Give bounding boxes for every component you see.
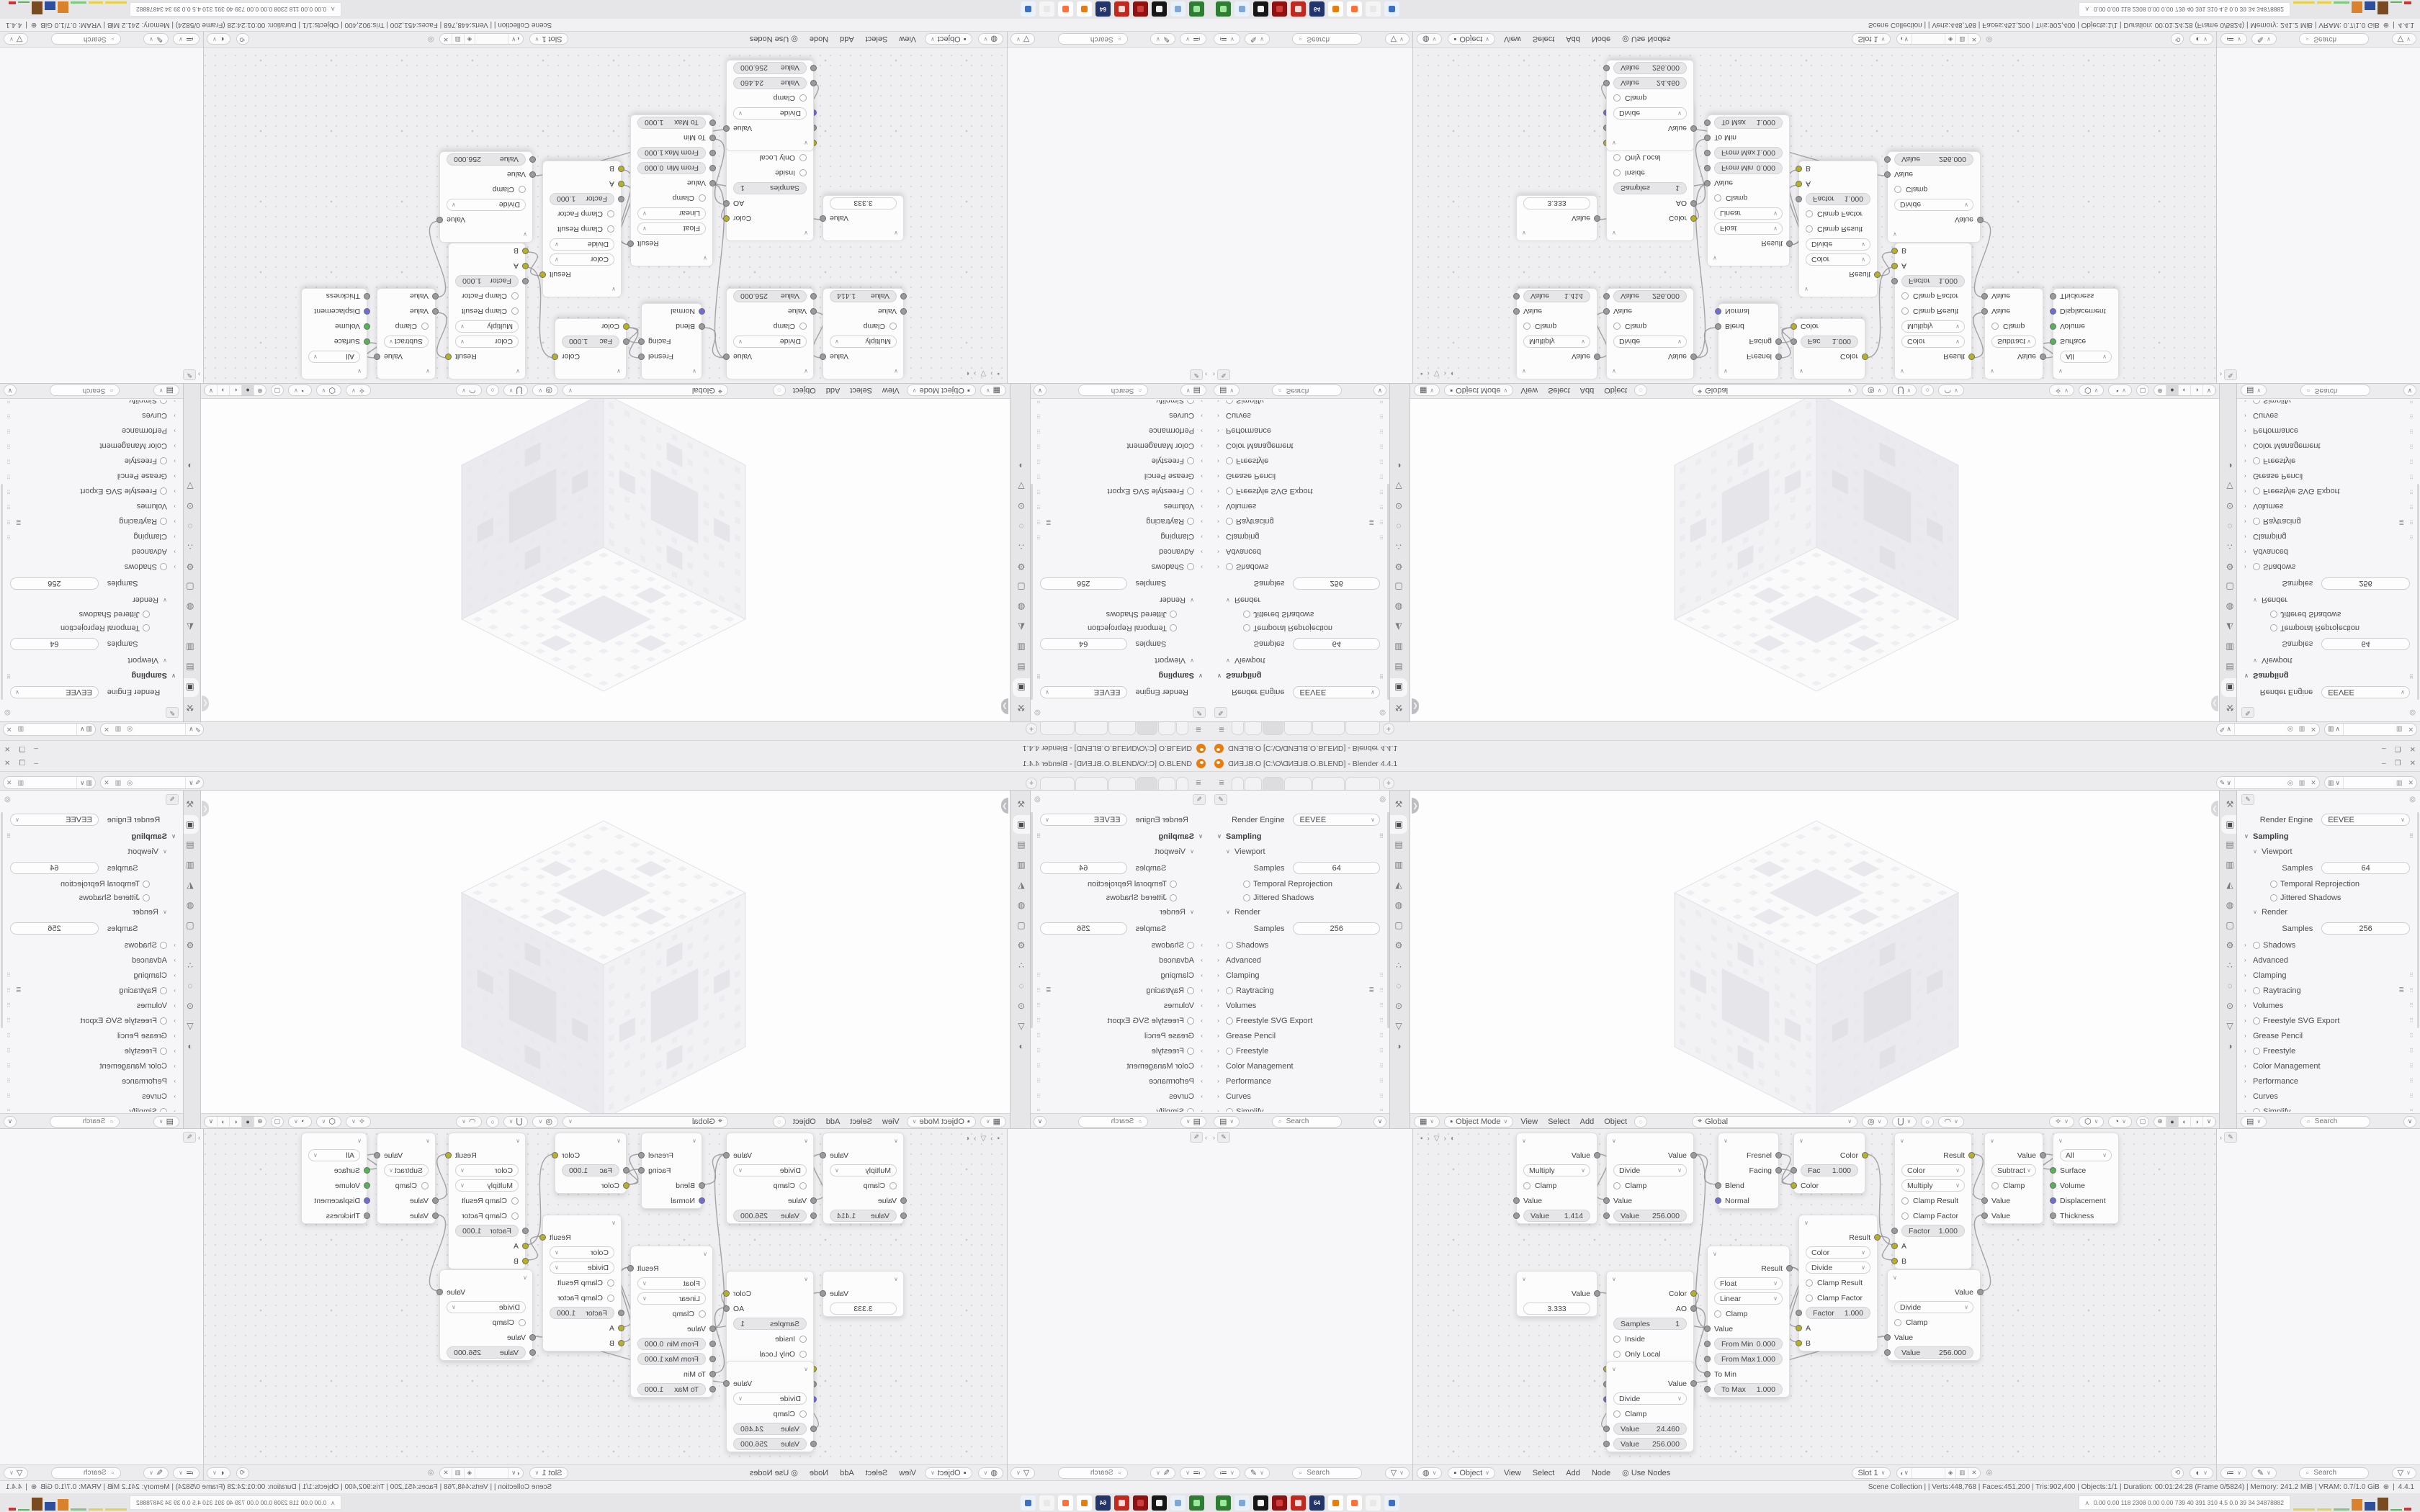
- socket-value[interactable]: [1884, 156, 1891, 163]
- material-slot-dropdown[interactable]: Slot 1∨: [529, 1467, 568, 1479]
- node-row-clamp-factor[interactable]: Clamp Factor: [1799, 207, 1877, 222]
- node-row-clamp[interactable]: Clamp: [1708, 191, 1789, 206]
- checkbox[interactable]: [1226, 518, 1233, 526]
- socket-color[interactable]: [723, 215, 730, 222]
- properties-tab-11-icon[interactable]: ▽: [2221, 477, 2238, 495]
- node-collapse-chevron[interactable]: ∨: [449, 1133, 525, 1148]
- node-row-divide[interactable]: Divide∨: [1607, 334, 1693, 349]
- prop-field-samples[interactable]: 256: [1040, 577, 1127, 590]
- node-dropdown[interactable]: Color∨: [455, 1164, 519, 1176]
- node-row-from-min[interactable]: From Min0.000: [631, 161, 712, 176]
- node-dropdown[interactable]: Divide∨: [447, 199, 526, 211]
- properties-tab-3-icon[interactable]: ▥: [2221, 855, 2238, 874]
- scene-selector[interactable]: ✎∨ ◎ ▥ ✕: [2216, 723, 2320, 736]
- menu-view[interactable]: View: [1501, 35, 1524, 44]
- prop-field-render-engine[interactable]: EEVEE∨: [10, 686, 99, 698]
- menu-add[interactable]: Add: [1577, 387, 1597, 395]
- scrollbar[interactable]: [1387, 484, 1389, 700]
- shading-mode-buttons[interactable]: ⊕●◐◑∨: [2154, 385, 2216, 397]
- checkbox[interactable]: [519, 1319, 526, 1326]
- material-selector[interactable]: ◐∨ ◈ ▥ ✕: [439, 1467, 523, 1479]
- node-value-field[interactable]: To Max1.000: [1714, 1383, 1783, 1395]
- node-value-field[interactable]: Samples1: [733, 1318, 807, 1330]
- ghost-toggle[interactable]: ▢: [271, 1116, 284, 1128]
- node-row-clamp[interactable]: Clamp: [631, 1306, 712, 1321]
- socket-factor[interactable]: [618, 1310, 624, 1316]
- node-value-field[interactable]: 3.333: [1523, 197, 1590, 210]
- properties-tab-5-icon[interactable]: ◍: [1013, 598, 1030, 616]
- properties-tab-7-icon[interactable]: ⚙: [181, 936, 199, 955]
- node-canvas[interactable]: ▪›▽›◐ ∨ValueMultiply∨ClampValueValue1.41…: [203, 1129, 1007, 1460]
- prop-panel-grease-pencil[interactable]: ›Grease Pencil⠿: [1210, 1028, 1387, 1043]
- node-map-range[interactable]: ∨ResultFloat∨Linear∨ClampValueFrom Min0.…: [1707, 1246, 1790, 1398]
- node-row-subtract[interactable]: Subtract∨: [377, 1163, 435, 1178]
- outliner-root-row[interactable]: › ✎: [1213, 369, 1230, 380]
- properties-tab-1-icon[interactable]: ▣: [1390, 678, 1407, 697]
- transform-orientation-dropdown[interactable]: ⌖Global∨: [1692, 1116, 1857, 1128]
- node-row-clamp-result[interactable]: Clamp Result: [1895, 304, 1971, 319]
- checkbox[interactable]: [1187, 518, 1194, 526]
- node-dropdown[interactable]: Divide∨: [1894, 1301, 1973, 1313]
- checkbox[interactable]: [889, 323, 897, 330]
- node-dropdown[interactable]: Color∨: [455, 336, 519, 348]
- properties-tab-9-icon[interactable]: ◌: [181, 976, 199, 995]
- workspace-tab-1[interactable]: [1232, 777, 1244, 791]
- checkbox[interactable]: [1187, 1048, 1194, 1055]
- node-value-field[interactable]: Factor1.000: [455, 275, 519, 287]
- checkbox[interactable]: [799, 1336, 807, 1343]
- socket-value[interactable]: [1603, 293, 1610, 300]
- taskbar-apps[interactable]: 64: [1021, 2, 1204, 17]
- filter-funnel-button[interactable]: ▽∨: [1385, 1467, 1410, 1479]
- prop-panel-performance[interactable]: ›Performance⠿: [3, 1074, 183, 1089]
- properties-tab-12-icon[interactable]: ◑: [181, 456, 199, 475]
- material-copy-icon[interactable]: ▥: [1955, 1468, 1968, 1478]
- minimize-button[interactable]: –: [34, 760, 38, 768]
- prop-panel-color-management[interactable]: ›Color Management⠿: [1033, 1058, 1210, 1074]
- checkbox[interactable]: [1901, 1212, 1909, 1220]
- checkbox[interactable]: [160, 400, 167, 405]
- workspace-tab-2[interactable]: [1245, 777, 1262, 791]
- node-value-field[interactable]: Value1.414: [830, 290, 897, 302]
- node-collapse-chevron[interactable]: ∨: [302, 1133, 367, 1148]
- node-math-divide-2[interactable]: ∨ValueDivide∨ClampValue24.460Value256.00…: [1606, 1361, 1694, 1452]
- shading-mode-buttons[interactable]: ⊕●◐◑∨: [204, 1116, 266, 1128]
- node-collapse-chevron[interactable]: ∨: [377, 364, 435, 379]
- node-row-clamp[interactable]: Clamp: [377, 1178, 435, 1193]
- editor-type-button[interactable]: ▤∨: [1214, 385, 1240, 397]
- socket-value[interactable]: [2040, 1152, 2046, 1158]
- node-row-multiply[interactable]: Multiply∨: [823, 334, 903, 349]
- node-value-field[interactable]: 3.333: [1523, 1302, 1590, 1315]
- snap-toggle[interactable]: ⟲: [2171, 34, 2184, 45]
- material-selector[interactable]: ◐∨ ◈ ▥ ✕: [1896, 1467, 1980, 1479]
- checkbox[interactable]: [1170, 625, 1177, 632]
- node-value-field[interactable]: Value256.000: [1894, 1346, 1973, 1359]
- material-copy-icon[interactable]: ▥: [452, 1468, 465, 1478]
- node-dropdown[interactable]: Subtract∨: [1991, 336, 2036, 348]
- socket-result[interactable]: [1968, 354, 1975, 360]
- add-workspace-button[interactable]: +: [1026, 723, 1037, 734]
- mode-selector[interactable]: ▪Object Mode∨: [907, 385, 976, 397]
- workspace-tab-3[interactable]: [1137, 721, 1157, 735]
- view-layer-name-field[interactable]: [2343, 724, 2393, 735]
- xray-dropdown[interactable]: ◔∨: [2108, 385, 2132, 397]
- proportional-edit-toggle[interactable]: ○: [486, 385, 499, 397]
- checkbox[interactable]: [511, 1197, 519, 1205]
- checkbox[interactable]: [1806, 211, 1813, 218]
- checkbox[interactable]: [1187, 1108, 1194, 1112]
- node-collapse-chevron[interactable]: ∨: [1718, 364, 1778, 379]
- node-row-samples[interactable]: Samples1: [1607, 181, 1693, 196]
- properties-tab-3-icon[interactable]: ▥: [1390, 855, 1407, 874]
- socket-value[interactable]: [1603, 1426, 1610, 1432]
- socket-factor[interactable]: [1891, 278, 1898, 284]
- menu-object[interactable]: Object: [1601, 387, 1630, 395]
- socket-value[interactable]: [432, 308, 439, 315]
- node-row-clamp[interactable]: Clamp: [1607, 1406, 1693, 1421]
- workspace-tab-1[interactable]: [1232, 721, 1244, 735]
- checkbox[interactable]: [1187, 458, 1194, 465]
- properties-tab-11-icon[interactable]: ▽: [1013, 1017, 1030, 1035]
- node-value-field[interactable]: From Min0.000: [1714, 162, 1783, 174]
- properties-tab-2-icon[interactable]: ▤: [2221, 658, 2238, 677]
- checkbox[interactable]: [889, 1182, 897, 1189]
- checkbox[interactable]: [1991, 323, 1999, 330]
- node-value-field[interactable]: Value1.414: [830, 1210, 897, 1222]
- socket-value[interactable]: [1594, 215, 1600, 222]
- prop-panel-freestyle[interactable]: ›Freestyle⠿: [3, 454, 183, 469]
- node-material-output[interactable]: ∨All∨SurfaceVolumeDisplacementThickness: [2053, 288, 2119, 379]
- checkbox[interactable]: [2253, 987, 2260, 994]
- menger-sponge-object[interactable]: [200, 399, 1010, 721]
- socket-factor[interactable]: [1796, 196, 1802, 202]
- node-row-clamp-factor[interactable]: Clamp Factor: [543, 207, 621, 222]
- socket-value[interactable]: [1513, 1197, 1520, 1204]
- node-dropdown[interactable]: Multiply∨: [1901, 320, 1965, 333]
- node-dropdown[interactable]: Divide∨: [1613, 1164, 1687, 1176]
- socket-value[interactable]: [709, 180, 716, 186]
- proportional-edit-toggle[interactable]: ○: [1921, 385, 1934, 397]
- taskbar-app-1[interactable]: [1170, 2, 1186, 17]
- node-row-factor[interactable]: Factor1.000: [1895, 274, 1971, 289]
- properties-tab-1-icon[interactable]: ▣: [181, 678, 199, 697]
- node-dropdown[interactable]: Float∨: [637, 1277, 706, 1290]
- socket-to max[interactable]: [709, 120, 716, 126]
- prop-panel-grease-pencil[interactable]: ›Grease Pencil⠿: [1210, 469, 1387, 484]
- prop-panel-clamping[interactable]: ›Clamping⠿: [1210, 529, 1387, 544]
- prop-panel-volumes[interactable]: ›Volumes⠿: [3, 998, 183, 1013]
- checkbox[interactable]: [1187, 564, 1194, 571]
- pin-icon[interactable]: ◎: [1034, 709, 1041, 717]
- node-collapse-chevron[interactable]: ∨: [543, 1215, 621, 1230]
- prop-panel-grease-pencil[interactable]: ›Grease Pencil⠿: [3, 469, 183, 484]
- filter-funnel-button[interactable]: ▽∨: [2392, 1467, 2416, 1479]
- prop-panel-performance[interactable]: ›Performance⠿: [3, 423, 183, 438]
- menu-node[interactable]: Node: [1589, 1469, 1613, 1477]
- shading-mode-3[interactable]: ◑: [217, 1117, 229, 1127]
- node-dropdown[interactable]: Linear∨: [637, 207, 706, 220]
- node-value-field[interactable]: Value256.000: [1613, 1210, 1687, 1222]
- material-name-field[interactable]: [1912, 35, 1945, 45]
- node-value-field[interactable]: Fac1.000: [562, 336, 619, 348]
- properties-tab-4-icon[interactable]: ◭: [2221, 618, 2238, 636]
- snap-dropdown[interactable]: ⋃∨: [503, 385, 529, 397]
- editor-type-button[interactable]: ▦∨: [1414, 1116, 1440, 1128]
- taskbar-app-7[interactable]: [1347, 1495, 1362, 1511]
- node-value-field[interactable]: Value256.000: [733, 1210, 807, 1222]
- socket-from max[interactable]: [1704, 1356, 1711, 1362]
- socket-color[interactable]: [1791, 323, 1797, 330]
- shading-mode-3[interactable]: ◑: [2191, 386, 2203, 396]
- prop-panel-performance[interactable]: ›Performance⠿: [1033, 1074, 1210, 1089]
- checkbox[interactable]: [1226, 942, 1233, 949]
- snap-toggle[interactable]: ⟲: [2171, 1467, 2184, 1479]
- shading-mode-1[interactable]: ●: [241, 1117, 254, 1127]
- prop-section-sampling[interactable]: ∨Sampling⠿: [2237, 668, 2417, 683]
- prop-section-render[interactable]: ∨Render: [1210, 904, 1387, 919]
- editor-type-button[interactable]: ≔∨: [1180, 1467, 1206, 1479]
- scene-copy-icon[interactable]: ▥: [2296, 726, 2308, 734]
- prop-panel-advanced[interactable]: ›Advanced: [2237, 544, 2417, 559]
- node-dropdown[interactable]: Multiply∨: [830, 336, 897, 348]
- prop-section-sampling[interactable]: ∨Sampling⠿: [1210, 829, 1387, 844]
- node-dropdown[interactable]: Divide∨: [1613, 336, 1687, 348]
- scene-selector[interactable]: ✎∨ ◎ ▥ ✕: [2216, 776, 2320, 789]
- view-layer-copy-icon[interactable]: ▥: [15, 779, 27, 787]
- node-row-divide[interactable]: Divide∨: [1799, 1260, 1877, 1275]
- shading-mode-0[interactable]: ⊕: [2154, 386, 2166, 396]
- checkbox[interactable]: [1243, 881, 1250, 888]
- properties-tab-4-icon[interactable]: ◭: [1390, 876, 1407, 894]
- menu-add[interactable]: Add: [1563, 1469, 1583, 1477]
- view-layer-copy-icon[interactable]: ▥: [2393, 726, 2406, 734]
- node-row-value[interactable]: Value256.000: [1888, 1345, 1980, 1360]
- prop-panel-freestyle-svg-export[interactable]: ›Freestyle SVG Export⠿: [1210, 1013, 1387, 1028]
- socket-from max[interactable]: [1704, 150, 1711, 156]
- node-row-to-max[interactable]: To Max1.000: [631, 1382, 712, 1397]
- properties-search[interactable]: ⌕: [1078, 385, 1148, 397]
- scrollbar[interactable]: [1387, 812, 1389, 1028]
- node-canvas[interactable]: ▪›▽›◐ ∨ValueMultiply∨ClampValueValue1.41…: [1413, 1129, 2217, 1460]
- node-collapse-chevron[interactable]: ∨: [823, 1133, 903, 1148]
- node-canvas[interactable]: ▪›▽›◐ ∨ValueMultiply∨ClampValueValue1.41…: [1413, 52, 2217, 383]
- outliner-root-row[interactable]: › ✎: [2220, 369, 2237, 380]
- node-row-clamp-result[interactable]: Clamp Result: [449, 304, 525, 319]
- node-value-field[interactable]: Value1.414: [1523, 1210, 1590, 1222]
- material-slot-dropdown[interactable]: Slot 1∨: [529, 34, 568, 45]
- socket-ao[interactable]: [1690, 200, 1697, 207]
- material-name-field[interactable]: [475, 35, 508, 45]
- node-row-clamp[interactable]: Clamp: [1985, 1178, 2043, 1193]
- transform-orientation-dropdown[interactable]: ⌖Global∨: [563, 1116, 728, 1128]
- prop-panel-grease-pencil[interactable]: ›Grease Pencil⠿: [2237, 1028, 2417, 1043]
- node-row-subtract[interactable]: Subtract∨: [1985, 1163, 2043, 1178]
- checkbox[interactable]: [1613, 323, 1621, 330]
- socket-value[interactable]: [723, 1380, 730, 1387]
- properties-tab-6-icon[interactable]: ▢: [181, 577, 199, 596]
- properties-tab-7-icon[interactable]: ⚙: [1013, 557, 1030, 576]
- socket-value[interactable]: [1594, 1290, 1600, 1297]
- socket-result[interactable]: [627, 240, 634, 247]
- checkbox[interactable]: [799, 95, 807, 102]
- node-dropdown[interactable]: Multiply∨: [1523, 1164, 1590, 1176]
- node-canvas[interactable]: ▪›▽›◐ ∨ValueMultiply∨ClampValueValue1.41…: [203, 52, 1007, 383]
- prop-section-viewport[interactable]: ∨Viewport: [3, 653, 183, 668]
- node-collapse-chevron[interactable]: ∨: [1517, 1272, 1597, 1286]
- socket-value[interactable]: [810, 1441, 817, 1447]
- workspace-tab-1[interactable]: [1176, 721, 1188, 735]
- editor-type-button[interactable]: ≔∨: [2220, 34, 2247, 45]
- node-dropdown[interactable]: Color∨: [1806, 253, 1870, 266]
- material-name-field[interactable]: [1912, 1468, 1945, 1478]
- checkbox[interactable]: [799, 155, 807, 162]
- pin-icon[interactable]: ◎: [1379, 796, 1386, 804]
- pivot-point-dropdown[interactable]: ◎∨: [1862, 385, 1887, 397]
- node-row-clamp[interactable]: Clamp: [1607, 319, 1693, 334]
- menu-select[interactable]: Select: [847, 1117, 875, 1126]
- falloff-dropdown[interactable]: ◠∨: [456, 1116, 481, 1128]
- snap-dropdown[interactable]: ⋃∨: [503, 1116, 529, 1128]
- properties-tab-5-icon[interactable]: ◍: [181, 896, 199, 914]
- node-map-range[interactable]: ∨ResultFloat∨Linear∨ClampValueFrom Min0.…: [630, 114, 713, 266]
- taskbar-app-7[interactable]: [1058, 1495, 1073, 1511]
- node-collapse-chevron[interactable]: ∨: [642, 1133, 702, 1148]
- checkbox[interactable]: [1226, 1048, 1233, 1055]
- properties-tab-7-icon[interactable]: ⚙: [181, 557, 199, 576]
- prop-panel-grease-pencil[interactable]: ›Grease Pencil⠿: [1033, 469, 1210, 484]
- prop-field-render-engine[interactable]: EEVEE∨: [1040, 686, 1127, 698]
- node-row-multiply[interactable]: Multiply∨: [1895, 1178, 1971, 1193]
- close-button[interactable]: ✕: [2410, 744, 2416, 752]
- prop-field-samples[interactable]: 256: [1293, 922, 1380, 935]
- prop-check-jittered-shadows[interactable]: Jittered Shadows: [2237, 891, 2417, 904]
- node-row-clamp[interactable]: Clamp: [823, 1178, 903, 1193]
- node-dropdown[interactable]: All∨: [2060, 351, 2112, 363]
- properties-tab-3-icon[interactable]: ▥: [181, 855, 199, 874]
- prop-panel-freestyle-svg-export[interactable]: ›Freestyle SVG Export⠿: [1033, 1013, 1210, 1028]
- checkbox[interactable]: [1613, 155, 1621, 162]
- node-dropdown[interactable]: Subtract∨: [1991, 1164, 2036, 1176]
- checkbox[interactable]: [699, 195, 706, 202]
- socket-to min[interactable]: [709, 135, 716, 141]
- taskbar-app-4[interactable]: [1291, 2, 1306, 17]
- properties-search[interactable]: ⌕: [1272, 1116, 1342, 1128]
- socket-factor[interactable]: [1796, 1310, 1802, 1316]
- scrollbar[interactable]: [1031, 484, 1033, 700]
- node-row-float[interactable]: Float∨: [631, 221, 712, 236]
- properties-tab-6-icon[interactable]: ▢: [2221, 577, 2238, 596]
- filter-funnel-button[interactable]: ▽∨: [4, 34, 28, 45]
- taskbar-app-0[interactable]: [1216, 1495, 1231, 1511]
- node-math-divide[interactable]: ∨ValueDivide∨ClampValueValue256.000: [1606, 288, 1694, 379]
- view-layer-name-field[interactable]: [2343, 777, 2393, 788]
- prop-panel-freestyle[interactable]: ›Freestyle⠿: [1210, 454, 1387, 469]
- node-row-clamp-result[interactable]: Clamp Result: [1799, 1275, 1877, 1290]
- node-math-subtract[interactable]: ∨ValueSubtract∨ClampValueValue: [1984, 1133, 2043, 1224]
- menu-select[interactable]: Select: [863, 35, 891, 44]
- taskbar-apps[interactable]: 64: [1216, 1495, 1399, 1511]
- prop-panel-volumes[interactable]: ›Volumes⠿: [1033, 499, 1210, 514]
- prop-panel-freestyle-svg-export[interactable]: ›Freestyle SVG Export⠿: [3, 1013, 183, 1028]
- taskbar-app-3[interactable]: [1133, 2, 1148, 17]
- node-row-divide[interactable]: Divide∨: [727, 1163, 813, 1178]
- node-row-multiply[interactable]: Multiply∨: [449, 319, 525, 334]
- node-dropdown[interactable]: All∨: [308, 351, 360, 363]
- prop-section-sampling[interactable]: ∨Sampling⠿: [3, 829, 183, 844]
- node-row-value[interactable]: Value256.000: [727, 1208, 813, 1223]
- scene-selector[interactable]: ✎∨ ◎ ▥ ✕: [100, 723, 204, 736]
- node-row-inside[interactable]: Inside: [727, 166, 813, 181]
- menu-select[interactable]: Select: [1530, 35, 1558, 44]
- prop-check-jittered-shadows[interactable]: Jittered Shadows: [1033, 608, 1210, 621]
- extras-icon[interactable]: ◌: [1634, 385, 1647, 397]
- node-row-color[interactable]: Color∨: [1895, 334, 1971, 349]
- socket-fresnel[interactable]: [638, 354, 645, 360]
- checkbox[interactable]: [1806, 1295, 1813, 1302]
- node-row-clamp-factor[interactable]: Clamp Factor: [1895, 289, 1971, 304]
- prop-field-samples[interactable]: 64: [1040, 638, 1127, 650]
- prop-panel-freestyle[interactable]: ›Freestyle⠿: [1033, 454, 1210, 469]
- prop-panel-performance[interactable]: ›Performance⠿: [1210, 423, 1387, 438]
- menu-select[interactable]: Select: [1545, 387, 1573, 395]
- properties-tab-8-icon[interactable]: ∴: [1390, 956, 1407, 975]
- outliner-search[interactable]: ⌕: [1292, 34, 1362, 45]
- checkbox[interactable]: [160, 1048, 167, 1055]
- prop-panel-curves[interactable]: ›Curves⠿: [2237, 1089, 2417, 1104]
- pivot-point-dropdown[interactable]: ◎∨: [532, 385, 557, 397]
- editor-type-button[interactable]: ≔∨: [173, 1467, 200, 1479]
- node-layer-weight[interactable]: ∨FresnelFacingBlendNormal: [1718, 303, 1779, 379]
- node-value-field[interactable]: Value256.000: [733, 290, 807, 302]
- node-row-all[interactable]: All∨: [302, 1148, 367, 1163]
- node-row-multiply[interactable]: Multiply∨: [449, 1178, 525, 1193]
- add-workspace-button[interactable]: +: [1383, 723, 1394, 734]
- properties-tab-4-icon[interactable]: ◭: [1390, 618, 1407, 636]
- node-row-fac[interactable]: Fac1.000: [555, 1163, 626, 1178]
- socket-to min[interactable]: [1704, 1371, 1711, 1377]
- taskbar-app-9[interactable]: [1384, 2, 1399, 17]
- prop-panel-simplify[interactable]: ›Simplify⠿: [1210, 1104, 1387, 1112]
- socket-blend[interactable]: [1715, 1182, 1721, 1189]
- workspace-tab-6[interactable]: [1345, 721, 1380, 735]
- checkbox[interactable]: [1613, 170, 1621, 177]
- socket-value[interactable]: [529, 156, 536, 163]
- pin-icon[interactable]: ◎: [1034, 796, 1041, 804]
- socket-ao[interactable]: [723, 1305, 730, 1312]
- prop-check-temporal-reprojection[interactable]: Temporal Reprojection: [3, 877, 183, 891]
- ghost-toggle[interactable]: ▢: [2136, 385, 2149, 397]
- properties-tab-7-icon[interactable]: ⚙: [2221, 936, 2238, 955]
- options-chevron-button[interactable]: ∨: [1034, 1116, 1047, 1128]
- node-row-clamp[interactable]: Clamp: [823, 319, 903, 334]
- shader-type-dropdown[interactable]: ▪Object∨: [925, 34, 972, 45]
- node-dropdown[interactable]: All∨: [308, 1149, 360, 1161]
- menu-add[interactable]: Add: [823, 387, 843, 395]
- display-mode-dropdown[interactable]: ✎∨: [2251, 34, 2277, 45]
- node-dropdown[interactable]: Subtract∨: [384, 1164, 429, 1176]
- socket-value[interactable]: [1603, 1197, 1610, 1204]
- node-row-value[interactable]: Value256.000: [727, 289, 813, 304]
- prop-check-jittered-shadows[interactable]: Jittered Shadows: [3, 608, 183, 621]
- properties-tab-2-icon[interactable]: ▤: [181, 658, 199, 677]
- prop-field-samples[interactable]: 64: [10, 862, 99, 874]
- node-mix-color-multiply[interactable]: ∨ResultColor∨Multiply∨Clamp ResultClamp …: [448, 1133, 526, 1269]
- node-value-field[interactable]: 3.333: [830, 197, 897, 210]
- properties-tab-10-icon[interactable]: ⊙: [2221, 996, 2238, 1015]
- checkbox[interactable]: [1523, 1182, 1531, 1189]
- node-row-to-max[interactable]: To Max1.000: [1708, 115, 1789, 130]
